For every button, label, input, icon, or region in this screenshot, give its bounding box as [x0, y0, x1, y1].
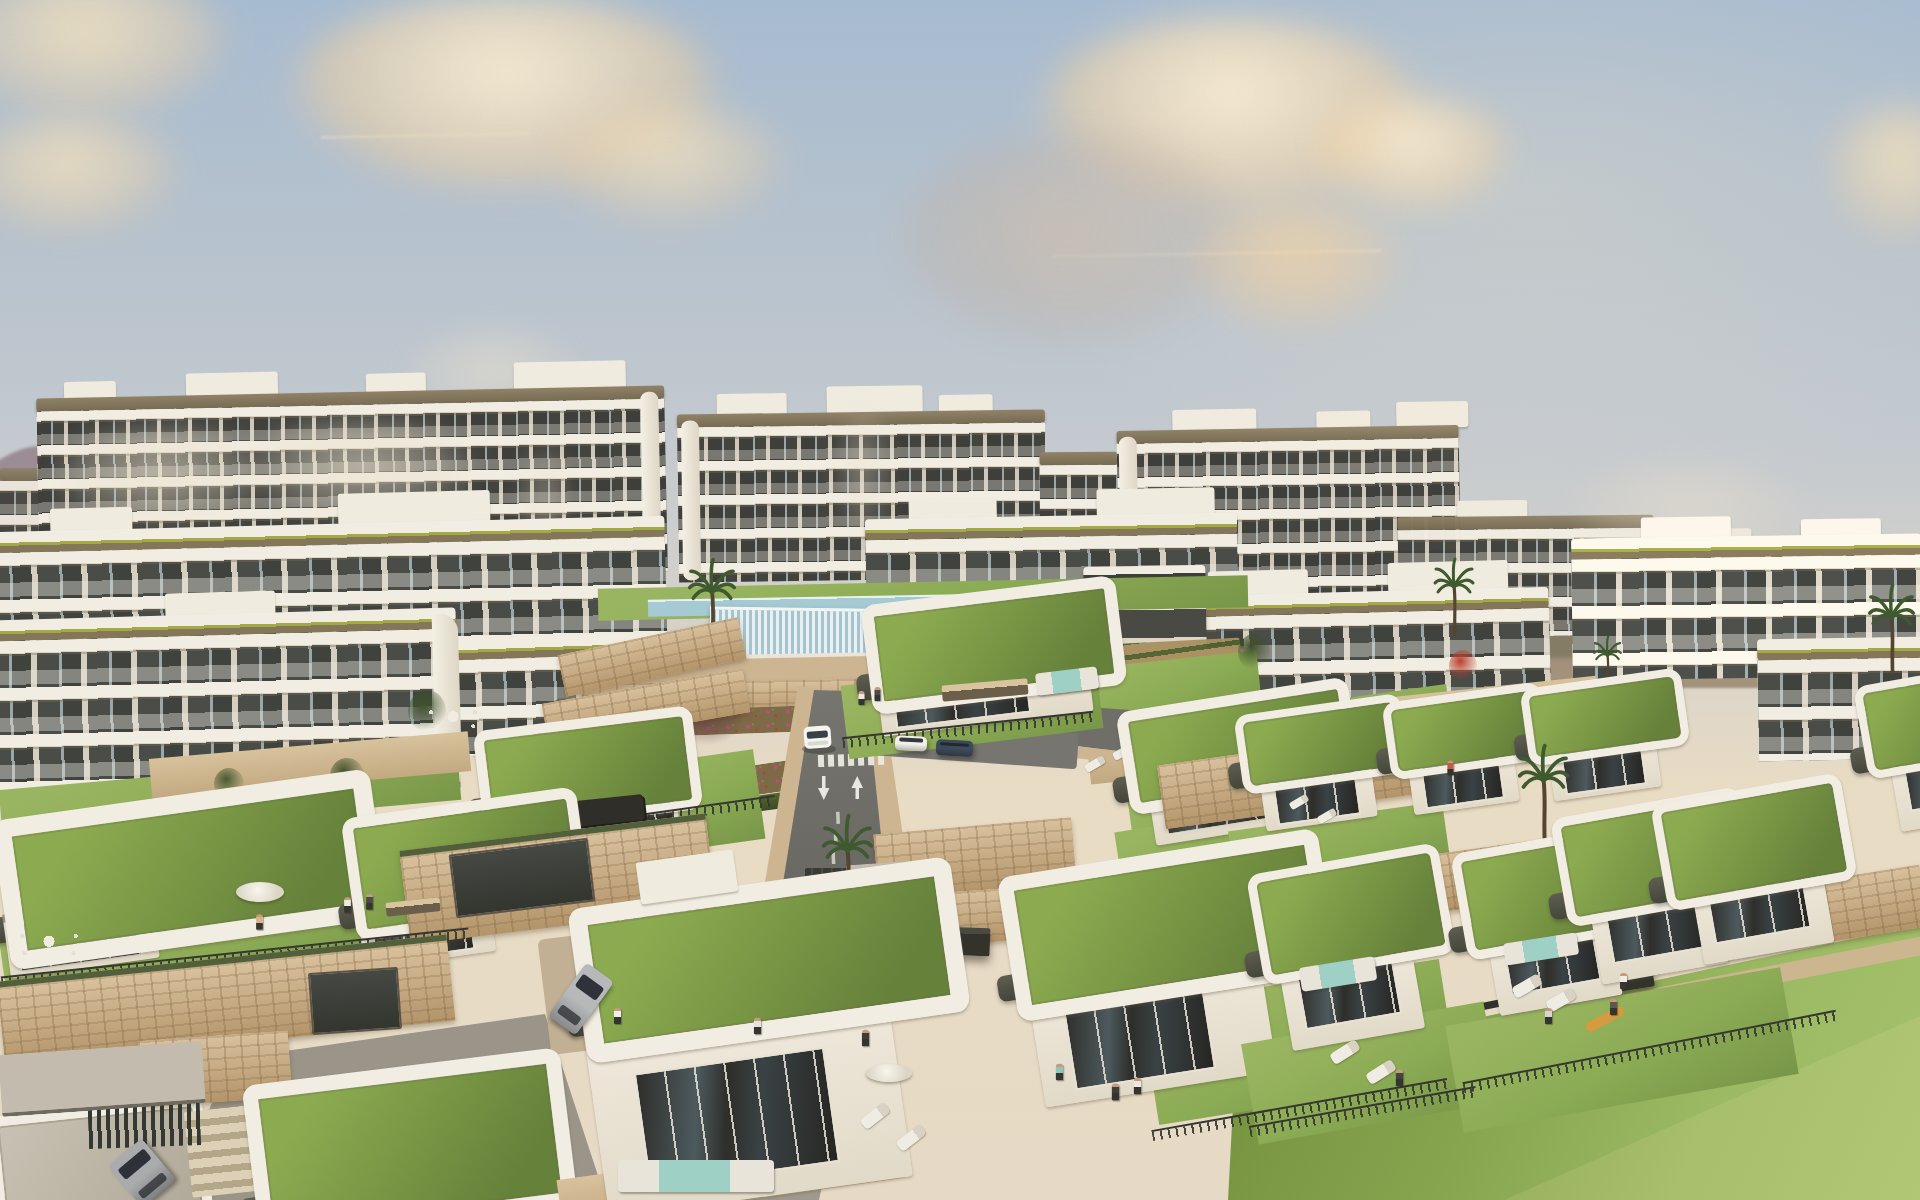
roof-box: [1396, 401, 1468, 428]
palm-tree: [1866, 582, 1917, 674]
person: [344, 897, 351, 912]
white-car-upper-road: [895, 735, 928, 752]
parasol: [866, 1064, 912, 1082]
tableset: [424, 704, 482, 732]
person: [862, 1030, 869, 1046]
person: [1134, 1078, 1141, 1095]
cloud: [895, 135, 1240, 345]
person: [858, 691, 864, 705]
person: [1447, 761, 1453, 775]
blue-car-upper-road: [936, 739, 974, 757]
palm-tree: [1432, 556, 1476, 636]
cloud: [550, 105, 785, 225]
white-car-upper-road-windshield: [899, 738, 923, 743]
person: [614, 1008, 621, 1024]
parasol: [236, 882, 284, 902]
palm-tree-graphic: [1866, 582, 1917, 674]
person: [1112, 1084, 1119, 1101]
silver-sports-car-windshield: [574, 973, 604, 1001]
palm-tree-graphic: [1432, 556, 1476, 636]
garage: [308, 967, 402, 1035]
person: [754, 1018, 761, 1034]
sofa-teal: [618, 1160, 774, 1192]
silver-car-garage-windshield: [117, 1148, 151, 1179]
architectural-rendering-scene: [0, 0, 1920, 1200]
person: [1545, 1008, 1552, 1024]
roof-box: [826, 385, 922, 414]
silver-sports-car-rear-glass: [556, 1004, 582, 1027]
person: [256, 914, 263, 930]
person: [1396, 1070, 1403, 1087]
roof-fascia: [1039, 452, 1117, 466]
person: [1620, 973, 1627, 989]
blue-car-upper-road-windshield: [941, 742, 969, 747]
person: [874, 687, 880, 701]
tableset: [14, 926, 84, 960]
person: [1610, 999, 1617, 1015]
person: [366, 894, 373, 909]
white-car-on-road: [803, 725, 831, 749]
person: [1056, 1064, 1063, 1081]
tree: [1449, 650, 1477, 682]
cloud: [1312, 98, 1512, 213]
cloud: [1190, 200, 1400, 330]
